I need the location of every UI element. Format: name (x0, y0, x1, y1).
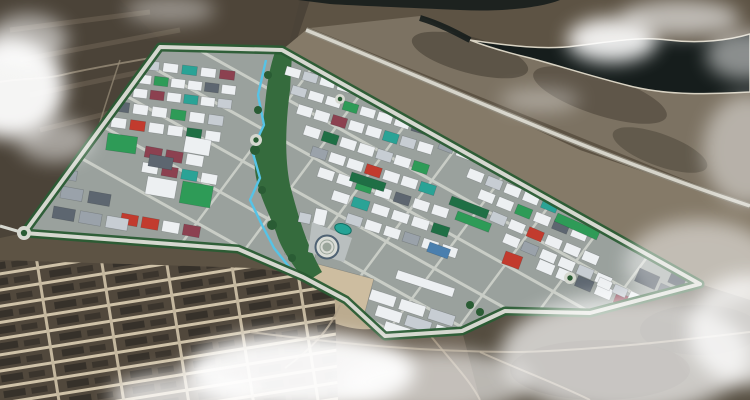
tree (267, 220, 277, 230)
tree (264, 71, 272, 79)
building (148, 122, 164, 134)
roundabout-island (21, 230, 27, 236)
tree (466, 301, 474, 309)
tree (288, 254, 296, 262)
building (187, 80, 202, 91)
plaza-center (323, 243, 332, 252)
building (217, 98, 232, 109)
building (133, 88, 148, 99)
building (208, 114, 224, 126)
building (183, 94, 198, 105)
building (129, 120, 145, 132)
building (181, 65, 197, 76)
roundabout-island (253, 137, 258, 142)
cloud (500, 88, 580, 112)
cloud (17, 118, 93, 162)
scene-svg (0, 0, 750, 400)
building (298, 212, 312, 224)
building (219, 70, 235, 81)
building (132, 104, 148, 116)
building (150, 90, 165, 101)
roundabout-island (338, 97, 343, 102)
cloud (620, 0, 740, 36)
building (167, 125, 183, 137)
building (154, 76, 169, 87)
building (163, 63, 179, 74)
building (167, 92, 182, 103)
tree (250, 145, 260, 155)
building (151, 106, 167, 118)
building (200, 67, 216, 78)
tree (254, 106, 262, 114)
roundabout-island (567, 275, 572, 280)
building (200, 96, 215, 107)
building (189, 112, 205, 124)
building (171, 78, 186, 89)
building (221, 84, 236, 95)
tree (476, 308, 484, 316)
building (204, 82, 219, 93)
aerial-render-image: Aerial 3D masterplan render of an organi… (0, 0, 750, 400)
building (170, 109, 186, 121)
tree (258, 186, 266, 194)
